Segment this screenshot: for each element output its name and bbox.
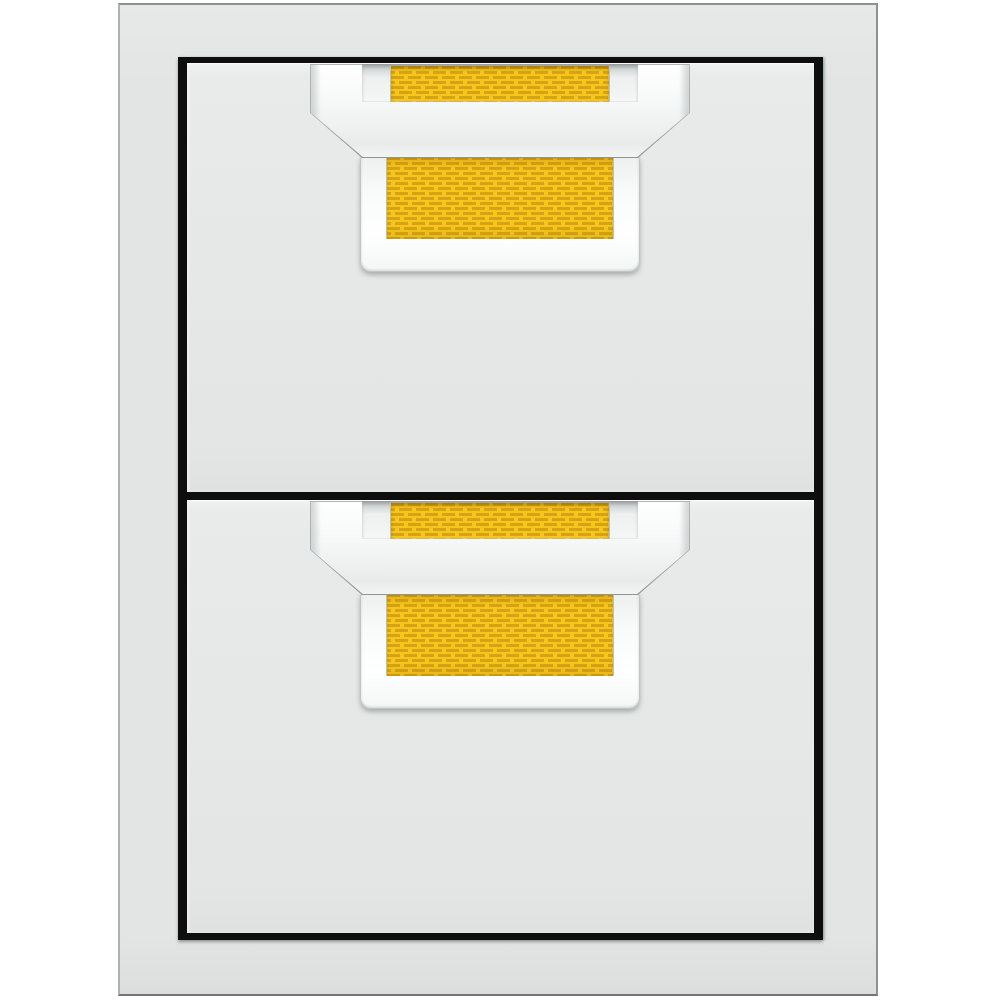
handle-lower-panel (360, 150, 640, 272)
accent-strip (390, 503, 610, 543)
accent-panel (386, 157, 614, 239)
handle-lower-panel (360, 587, 640, 709)
panel-bevel-shadow (372, 239, 628, 259)
product-image (0, 0, 1000, 1000)
handle-top-recess (362, 501, 638, 543)
accent-strip (390, 66, 610, 106)
drawer-unit-frame (118, 3, 878, 996)
accent-panel (386, 594, 614, 676)
drawer-handle (187, 63, 814, 492)
handle-top-recess (362, 64, 638, 106)
panel-bevel-shadow (372, 676, 628, 696)
drawer-handle (187, 500, 814, 933)
drawer-lower (187, 500, 814, 933)
drawer-upper (187, 63, 814, 492)
drawer-stack (178, 57, 823, 940)
